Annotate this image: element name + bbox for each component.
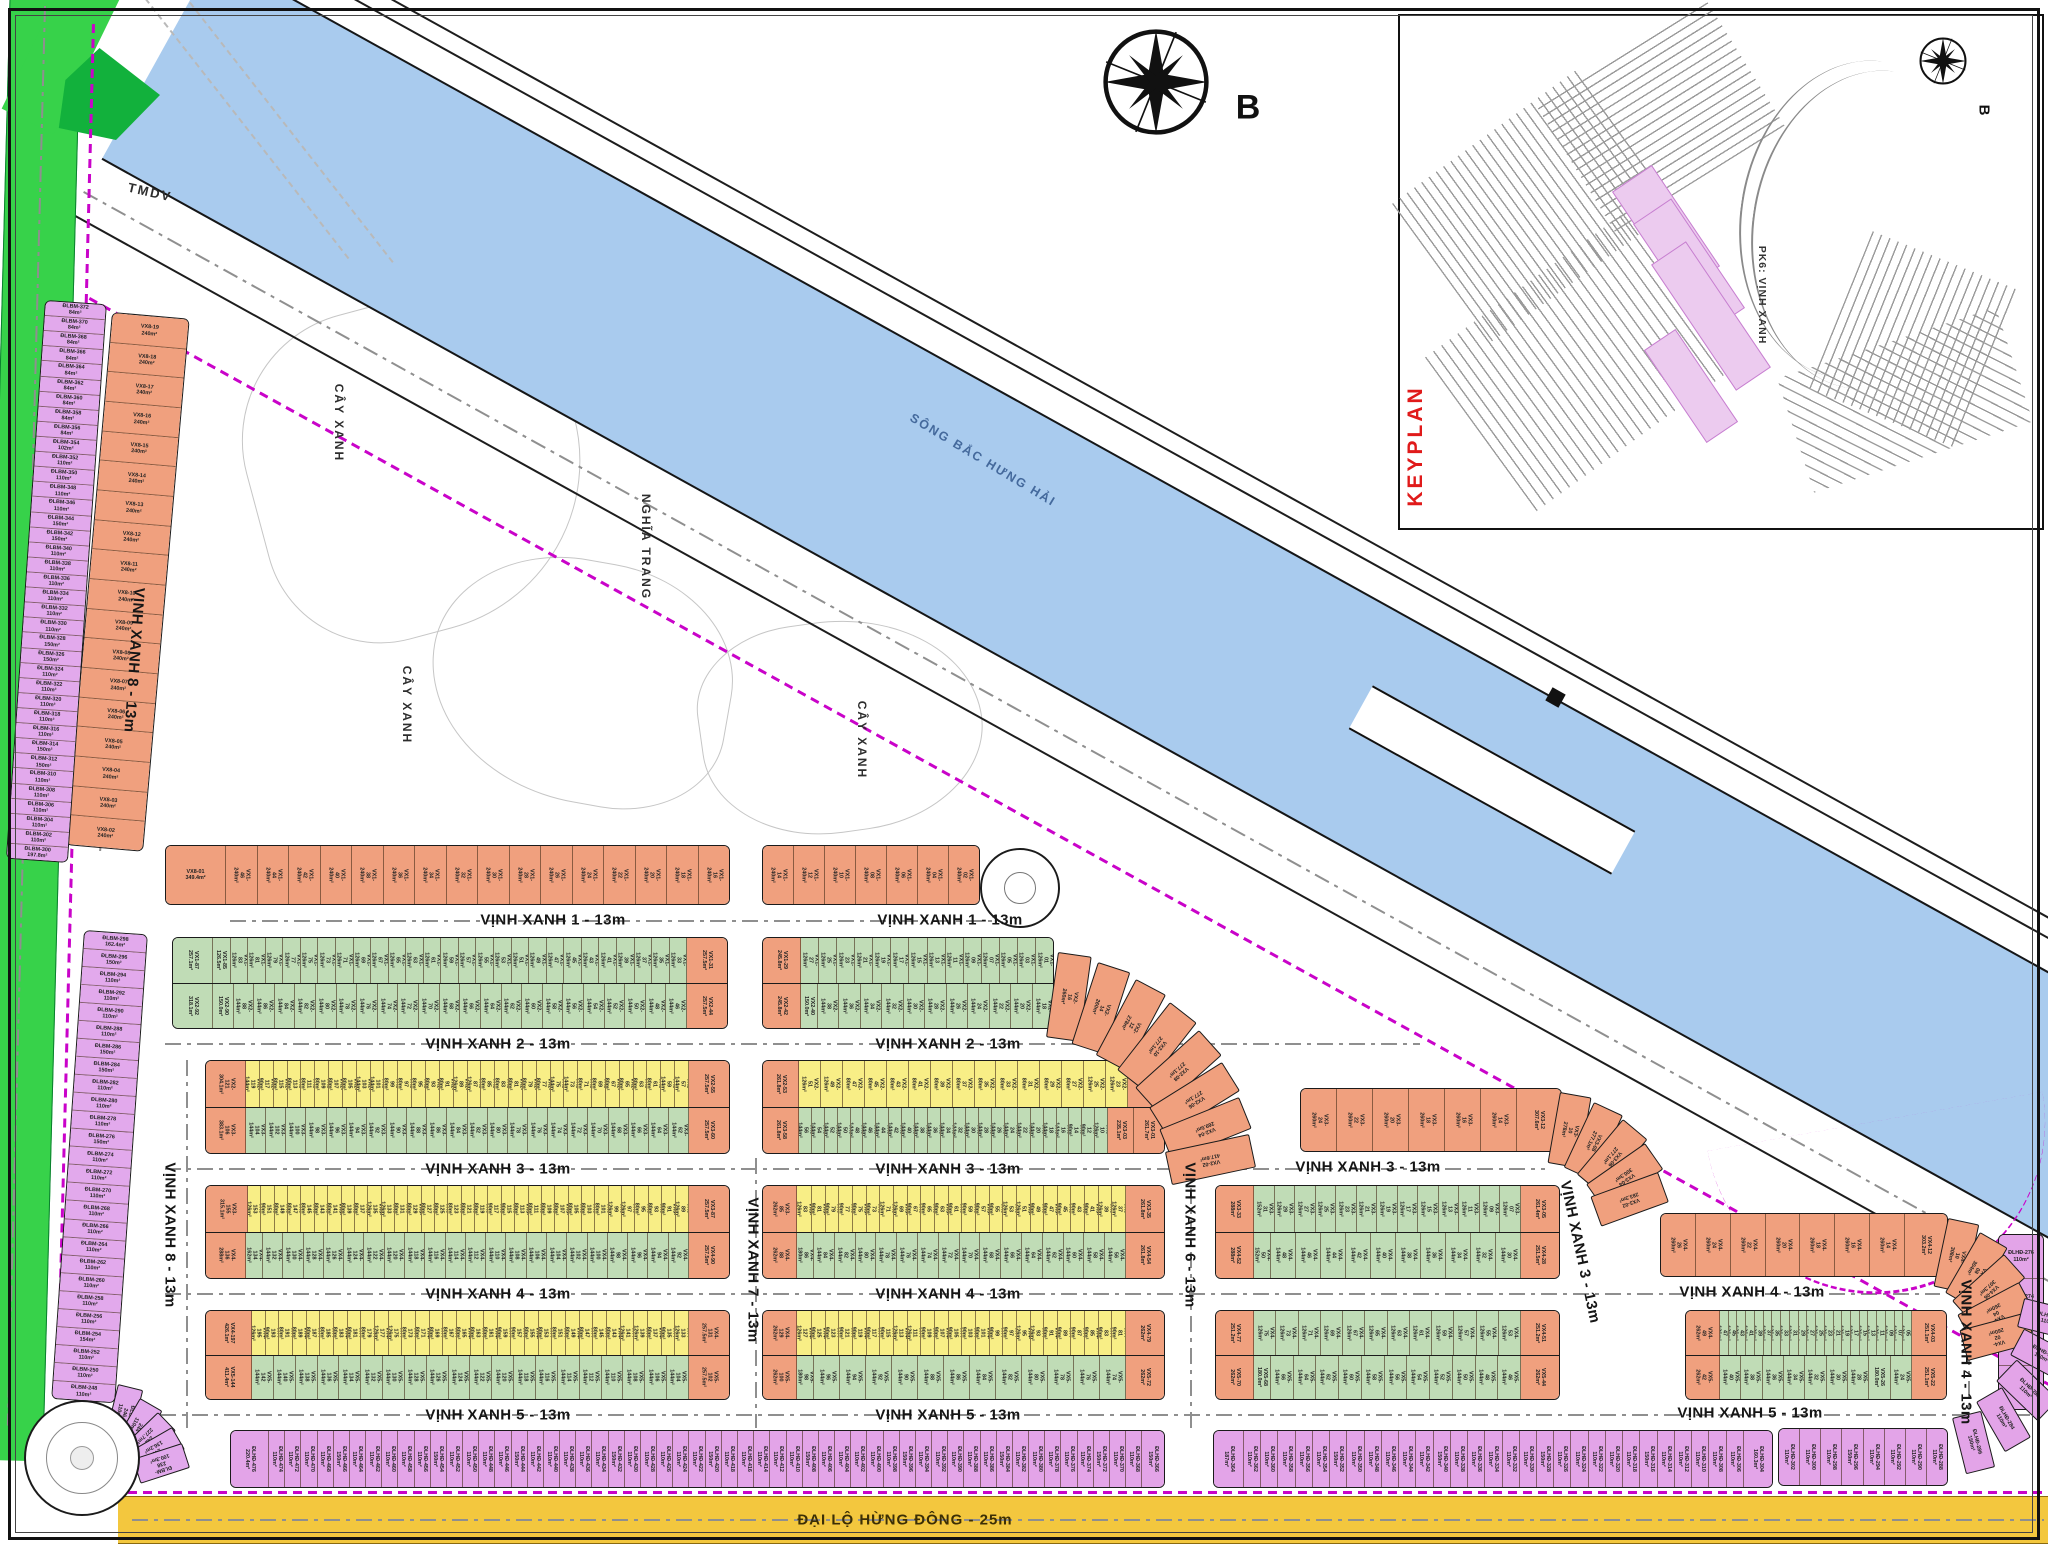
plot-cell-label: VX3-68 144m²	[609, 1122, 628, 1138]
plot-cell-label: VX3-82 144m²	[468, 1122, 487, 1138]
plot-cell-label: VX2-33 80m²	[998, 1077, 1017, 1090]
plot-cell: VX1-46 240m²	[226, 846, 258, 904]
plot-cell: VX1-83 126m²	[231, 938, 249, 983]
plot-cell-label: VX2-06 277.1m²	[1183, 1089, 1207, 1110]
plot-cell-label: VX5-102 257.5m²	[700, 1367, 719, 1387]
plot-cell: VX4-84 144m²	[814, 1233, 835, 1279]
plot-cell: VX3-48 144m²	[851, 1108, 864, 1154]
plot-cell-label: VX1-08 240m²	[862, 867, 881, 883]
plot-cell-label: VX2-14 260m²	[1090, 998, 1113, 1019]
plot-cell: VX3-106 383.1m²	[206, 1108, 246, 1154]
plot-cell-label: VX2-39 80m²	[932, 1077, 951, 1090]
plot-cell: VX2-99 80m²	[384, 1061, 398, 1107]
plot-cell-label: VX3-23 126m²	[1337, 1201, 1356, 1217]
plot-cell: VX1-33 126m²	[670, 938, 688, 983]
plot-cell: VX3-131 80m²	[395, 1186, 408, 1232]
plot-cell: VX5-24 144m²	[1891, 1356, 1912, 1400]
plot-cell: VX5-114 144m²	[558, 1356, 580, 1400]
plot-cell: VX1-27 126m²	[801, 938, 819, 983]
plot-cell-label: VX4-102 144m²	[568, 1247, 587, 1263]
plot-cell: VX1-49 126m²	[529, 938, 547, 983]
plot-cell: VX1-23 126m²	[837, 938, 855, 983]
plot-cell: VX1-12 240m²	[794, 846, 825, 904]
plot-cell-label: ĐLHĐ-412 110m²	[772, 1446, 784, 1472]
plot-cell-label: VX1-43 126m²	[582, 952, 600, 968]
plot-cell-label: VX4-93 126m²	[1031, 1325, 1045, 1341]
plot-cell: VX4-125 90m²	[812, 1311, 826, 1355]
plot-cell-label: ĐLBM-344 150m²	[47, 514, 74, 528]
plot-cell: VX3-113 80m²	[515, 1186, 528, 1232]
plot-cell-label: ĐLHĐ-324 110m²	[1573, 1446, 1585, 1472]
plot-cell-label: ĐLHĐ-374 110m²	[1079, 1446, 1091, 1472]
plot-cell: VX4-71 126m²	[1299, 1311, 1321, 1355]
plot-cell-label: ĐLBM-364 84m²	[58, 363, 85, 377]
plot-cell: VX3-03 235.1m²	[1108, 1108, 1134, 1154]
plot-cell: VX3-43 90m²	[1071, 1186, 1085, 1232]
plot-cell: VX4-193 90m²	[266, 1311, 280, 1355]
plot-cell: VX4-41 126m²	[1746, 1311, 1755, 1355]
plot-cell: ĐLHĐ-378 110m²	[1045, 1431, 1061, 1487]
plot-cell: ĐLHĐ-436 110m²	[576, 1431, 592, 1487]
plot-cell: VX5-26 180.0m²	[1869, 1356, 1890, 1400]
plot-cell: VX3-14 90m²	[1069, 1108, 1082, 1154]
plot-cell-label: ĐLHĐ-468 110m²	[319, 1446, 331, 1472]
plot-cell-label: ĐLHĐ-382 110m²	[1014, 1446, 1026, 1472]
plot-cell-label: VX2-46 144m²	[667, 998, 686, 1014]
plot-cell: VX4-33 126m²	[1781, 1311, 1790, 1355]
plot-row: VX5-144 411.4m²VX5-142 144m²VX5-140 144m…	[206, 1355, 729, 1400]
plot-cell-label: ĐLHĐ-296 150m²	[1846, 1444, 1858, 1470]
plot-cell-label: VX4-74 144m²	[919, 1247, 938, 1263]
plot-cell: ĐLBM-248 110m²	[52, 1381, 115, 1402]
plot-cell-label: VX4-149 80m²	[566, 1326, 580, 1339]
plot-cell: VX1-22 240m²	[604, 846, 636, 904]
plot-cell: ĐLHĐ-310 110m²	[1692, 1431, 1709, 1487]
plot-cell: VX4-38 144m²	[1396, 1233, 1421, 1279]
plot-cell: VX4-97 90m²	[1003, 1311, 1017, 1355]
plot-cell: VX1-13 126m²	[928, 938, 946, 983]
plot-cell-label: VX2-43 80m²	[888, 1077, 907, 1090]
plot-cell: VX2-42 245.8m²	[763, 984, 801, 1029]
plot-cell-label: ĐLHĐ-364 187m²	[1222, 1446, 1234, 1472]
plot-cell-label: VX3-147 80m²	[288, 1202, 301, 1215]
plot-cell-label: VX5-108 144m²	[624, 1369, 643, 1385]
plot-cell-label: ĐLHĐ-358 110m²	[1280, 1446, 1292, 1472]
plot-cell-label: VX5-72 262m²	[1139, 1368, 1151, 1386]
plot-cell-label: VX4-60 144m²	[1064, 1247, 1083, 1263]
plot-cell: VX3-66 144m²	[629, 1108, 649, 1154]
plot-cell: VX3-92 144m²	[367, 1108, 387, 1154]
plot-cell: VX3-19 126m²	[1377, 1186, 1398, 1232]
plot-cell: VX2-71 80m²	[578, 1061, 592, 1107]
plot-cell: VX4-136 288m²	[206, 1233, 246, 1279]
plot-cell-label: ĐLHĐ-298 110m²	[1825, 1444, 1837, 1470]
plot-cell: VX1-37 126m²	[635, 938, 653, 983]
plot-cell-label: ĐLBM-318 110m²	[33, 710, 60, 724]
plot-cell: VX4-72 144m²	[939, 1233, 960, 1279]
plot-cell: VX3-75 90m²	[853, 1186, 867, 1232]
plot-cell-label: VX4-18 260m²	[1808, 1237, 1827, 1254]
plot-cell-label: VX2-02 417.6m²	[1199, 1151, 1221, 1167]
plot-cell: VX2-29 80m²	[1040, 1061, 1062, 1107]
plot-cell-label: VX4-179 80m²	[361, 1326, 375, 1339]
plot-cell: VX2-84 144m²	[275, 984, 296, 1029]
plot-cell: VX8-01 349.4m²	[166, 846, 226, 904]
plot-cell-label: VX8-03 240m²	[99, 797, 118, 811]
plot-cell-label: ĐLBM-292 110m²	[98, 989, 125, 1003]
plot-cell-label: VX4-143 80m²	[607, 1326, 621, 1339]
plot-cell-label: ĐLBM-254 154m²	[74, 1330, 101, 1344]
plot-cell-label: VX5-92 144m²	[869, 1369, 888, 1385]
plot-cell-label: ĐLHĐ-426 110m²	[659, 1446, 671, 1472]
plot-cell: VX4-167 80m²	[443, 1311, 457, 1355]
plot-cell: VX5-32 144m²	[1805, 1356, 1826, 1400]
plot-cell: VX2-55 257.5m²	[689, 1061, 729, 1107]
plot-cell-label: VX1-73 126m²	[318, 952, 336, 968]
plot-cell-label: VX4-68 144m²	[981, 1247, 1000, 1263]
plot-cell-label: VX4-29 126m²	[1799, 1325, 1808, 1341]
plot-cell-label: VX4-32 144m²	[1474, 1247, 1493, 1263]
plot-cell: VX4-29 126m²	[1799, 1311, 1808, 1355]
plot-cell-label: ĐLBM-314 150m²	[31, 740, 58, 754]
plot-cell: VX3-29 126m²	[1275, 1186, 1296, 1232]
plot-cell: VX5-86 144m²	[944, 1356, 970, 1400]
plot-cell-label: VX5-78 144m²	[1051, 1369, 1070, 1385]
plot-cell-label: VX4-46 144m²	[1299, 1247, 1318, 1263]
plot-block-row-vx3-right: VX3-24 260m²VX3-22 260m²VX3-20 260m²VX3-…	[1300, 1088, 1562, 1152]
plot-cell: ĐLHĐ-470 110m²	[301, 1431, 317, 1487]
plot-cell-label: VX3-30 144m²	[966, 1122, 979, 1138]
plot-row: VX3-58 261.8m²VX3-56 144m²VX3-54 144m²VX…	[763, 1107, 1164, 1154]
plot-cell: ĐLHĐ-438 110m²	[560, 1431, 576, 1487]
plot-cell: VX4-123 90m²	[826, 1311, 840, 1355]
plot-cell-label: VX3-113 80m²	[515, 1202, 528, 1215]
plot-row: VX4-88 262m²VX4-86 180m²VX4-84 144m²VX4-…	[763, 1232, 1164, 1279]
plot-cell: VX3-83 126m²	[797, 1186, 812, 1232]
plot-cell-label: VX3-135 126m²	[368, 1201, 381, 1217]
plot-cell-label: ĐLBM-278 110m²	[89, 1114, 116, 1128]
plot-cell: VX3-147 80m²	[288, 1186, 301, 1232]
plot-cell: VX5-144 411.4m²	[206, 1356, 252, 1400]
plot-cell: VX3-99 126m²	[609, 1186, 622, 1232]
plot-cell-label: VX2-90 150.0m²	[217, 996, 229, 1016]
plot-cell-label: VX4-101 90m²	[976, 1326, 990, 1339]
plot-cell-label: VX2-27 80m²	[1063, 1077, 1082, 1090]
plot-cell: VX4-15 126m²	[1860, 1311, 1869, 1355]
plot-cell: VX2-74 144m²	[378, 984, 399, 1029]
plot-cell-label: VX1-19 126m²	[873, 952, 891, 968]
plot-cell-label: VX3-24 260m²	[1309, 1111, 1328, 1129]
plot-cell: ĐLHĐ-348 110m²	[1365, 1431, 1382, 1487]
plot-cell-label: VX3-94 144m²	[347, 1122, 366, 1138]
plot-cell-label: ĐLBM-288 110m²	[95, 1025, 122, 1039]
plot-cell: VX3-74 144m²	[548, 1108, 568, 1154]
plot-cell: VX3-26 144m²	[992, 1108, 1005, 1154]
plot-cell: ĐLHĐ-290 110m²	[1906, 1429, 1927, 1485]
plot-cell: VX1-75 126m²	[301, 938, 319, 983]
plot-cell-label: ĐLHĐ-310 110m²	[1694, 1446, 1706, 1472]
plot-cell: ĐLHĐ-450 110m²	[463, 1431, 479, 1487]
plot-cell: VX3-145 80m²	[301, 1186, 314, 1232]
plot-cell-label: VX4-112 144m²	[466, 1247, 485, 1263]
plot-cell-label: ĐLBM-286 150m²	[94, 1043, 121, 1057]
plot-cell: VX4-137 80m²	[648, 1311, 662, 1355]
plot-cell-label: VX1-31 257.5m²	[701, 950, 713, 970]
plot-cell-label: VX1-57 126m²	[459, 952, 477, 968]
plot-cell-label: ĐLBM-358 84m²	[54, 409, 81, 423]
plot-cell: VX4-105 90m²	[949, 1311, 963, 1355]
plot-cell-label: VX5-50 144m²	[1454, 1369, 1473, 1385]
plot-cell-label: VX3-20 144m²	[1031, 1122, 1044, 1138]
plot-cell-label: VX4-127 126m²	[797, 1325, 812, 1341]
plot-cell: VX1-36 240m²	[384, 846, 416, 904]
plot-cell-label: VX2-51 126m²	[800, 1076, 819, 1092]
plot-cell-label: VX1-71 126m²	[336, 952, 354, 968]
plot-cell-label: ĐLHĐ-452 110m²	[448, 1446, 460, 1472]
plot-cell-label: VX4-67 126m²	[1344, 1325, 1363, 1341]
plot-cell-label: VX2-04 269.5m²	[1194, 1119, 1217, 1138]
plot-cell: VX2-57 144m²	[675, 1061, 689, 1107]
plot-cell-label: VX3-15 126m²	[1419, 1201, 1438, 1217]
plot-cell: VX3-109 80m²	[542, 1186, 555, 1232]
plot-cell-label: VX8-01 349.4m²	[185, 869, 205, 881]
plot-cell: ĐLHĐ-424 110m²	[673, 1431, 689, 1487]
plot-cell: VX4-31 126m²	[1790, 1311, 1799, 1355]
plot-cell: VX4-100 144m²	[588, 1233, 608, 1279]
plot-cell-label: ĐLBM-282 110m²	[92, 1079, 119, 1093]
plot-cell-label: VX1-09 126m²	[964, 952, 982, 968]
plot-cell-label: VX4-100 144m²	[588, 1247, 607, 1263]
plot-cell: VX1-59 126m²	[441, 938, 459, 983]
plot-cell-label: VX4-116 144m²	[426, 1247, 445, 1263]
plot-cell-label: ĐLHĐ-430 110m²	[626, 1446, 638, 1472]
plot-cell: VX5-30 144m²	[1827, 1356, 1848, 1400]
plot-cell: VX4-43 126m²	[1737, 1311, 1746, 1355]
plot-cell-label: VX1-30 240m²	[484, 867, 503, 883]
plot-cell: VX4-83 90m²	[1099, 1311, 1113, 1355]
street-label: VỊNH XANH 3 - 13m	[1295, 1159, 1440, 1176]
plot-cell-label: ĐLHĐ-390 110m²	[950, 1446, 962, 1472]
plot-cell: VX3-42 144m²	[889, 1108, 902, 1154]
plot-cell-label: VX2-28 144m²	[926, 998, 945, 1014]
plot-cell: VX3-139 80m²	[342, 1186, 355, 1232]
plot-cell: ĐLHĐ-442 110m²	[528, 1431, 544, 1487]
plot-cell: VX5-116 144m²	[536, 1356, 558, 1400]
plot-cell: VX4-20 260m²	[1766, 1214, 1801, 1276]
plot-cell-label: VX3-55 90m²	[990, 1202, 1004, 1215]
plot-row: VX4-49 262m²VX4-47 126m²VX4-45 126m²VX4-…	[1686, 1311, 1946, 1355]
plot-cell: VX4-129 262m²	[763, 1311, 797, 1355]
plot-cell: VX2-86 144m²	[254, 984, 275, 1029]
plot-cell-label: VX1-14 240m²	[769, 867, 788, 883]
plot-cell: VX2-37 80m²	[953, 1061, 975, 1107]
plot-cell: VX3-31 152m²	[1254, 1186, 1275, 1232]
plot-cell-label: VX2-73 144m²	[564, 1076, 578, 1092]
plot-cell-label: VX5-122 144m²	[472, 1369, 491, 1385]
plot-cell-label: VX4-63 126m²	[1389, 1325, 1408, 1341]
plot-cell: VX4-159 90m²	[498, 1311, 512, 1355]
plot-cell-label: VX1-69 126m²	[354, 952, 372, 968]
plot-cell: VX3-55 90m²	[990, 1186, 1004, 1232]
plot-row: VX3-33 288m²VX3-31 152m²VX3-29 126m²VX3-…	[1216, 1186, 1559, 1232]
plot-cell: VX4-181 80m²	[348, 1311, 362, 1355]
plot-cell: VX4-46 144m²	[1296, 1233, 1321, 1279]
plot-cell: VX2-64 144m²	[481, 984, 502, 1029]
plot-cell-label: VX8-17 240m²	[135, 383, 154, 397]
plot-cell-label: VX4-123 90m²	[826, 1326, 840, 1339]
plot-cell: VX4-133 126m²	[675, 1311, 689, 1355]
plot-cell: VX3-101 80m²	[595, 1186, 608, 1232]
plot-cell: VX4-107 90m²	[935, 1311, 949, 1355]
plot-cell: VX2-45 80m²	[865, 1061, 887, 1107]
plot-cell: VX3-104 144m²	[246, 1108, 266, 1154]
plot-cell-label: VX5-114 144m²	[559, 1369, 578, 1385]
plot-cell-label: ĐLHĐ-316 150m²	[1642, 1446, 1654, 1472]
plot-cell: VX1-26 240m²	[541, 846, 573, 904]
plot-cell: ĐLHĐ-322 110m²	[1589, 1431, 1606, 1487]
plot-cell: VX3-84 144m²	[447, 1108, 467, 1154]
plot-cell-label: VX5-98 180m²	[797, 1369, 814, 1385]
plot-cell: ĐLHĐ-388 110m²	[964, 1431, 980, 1487]
plot-cell-label: ĐLHĐ-380 110m²	[1030, 1446, 1042, 1472]
plot-cell-label: VX4-48 144m²	[1274, 1247, 1293, 1263]
plot-cell: VX3-49 90m²	[1031, 1186, 1045, 1232]
plot-cell: ĐLHĐ-462 110m²	[366, 1431, 382, 1487]
plot-cell-label: ĐLHĐ-378 110m²	[1047, 1446, 1059, 1472]
plot-cell-label: VX5-60 144m²	[1341, 1369, 1360, 1385]
plot-cell-label: ĐLHĐ-416 110m²	[739, 1446, 751, 1472]
plot-cell-label: VX5-44 262m²	[1534, 1368, 1546, 1386]
plot-cell: VX4-50 152m²	[1254, 1233, 1271, 1279]
plot-cell-label: VX3-28 144m²	[979, 1122, 992, 1138]
plot-cell-label: VX3-151 90m²	[261, 1202, 274, 1215]
plot-cell-label: VX3-16 144m²	[1057, 1122, 1070, 1138]
plot-cell-label: VX4-88 262m²	[770, 1247, 789, 1264]
street-label: VỊNH XANH 1 - 13m	[877, 912, 1022, 929]
plot-cell-label: ĐLBM-266 110m²	[82, 1222, 109, 1236]
plot-cell-label: ĐLBM-264 110m²	[80, 1240, 107, 1254]
plot-cell: ĐLHĐ-398 110m²	[884, 1431, 900, 1487]
plot-cell: VX3-77 90m²	[839, 1186, 853, 1232]
plot-cell: VX1-28 240m²	[510, 846, 542, 904]
plot-row: VX4-52 288m²VX4-50 152m²VX4-48 144m²VX4-…	[1216, 1232, 1559, 1279]
keyplan-north-label: B	[1976, 105, 1993, 116]
plot-cell-label: VX1-23 126m²	[837, 952, 855, 968]
plot-cell-label: ĐLHĐ-332 110m²	[1504, 1446, 1516, 1472]
plot-cell: VX2-107 80m²	[329, 1061, 343, 1107]
plot-cell-label: VX5-144 411.4m²	[222, 1367, 234, 1388]
plot-cell-label: VX1-21 126m²	[855, 952, 873, 968]
plot-cell: VX2-22 144m²	[990, 984, 1011, 1029]
plot-cell-label: VX4-65 126m²	[1367, 1325, 1386, 1341]
plot-cell: VX1-35 126m²	[652, 938, 670, 983]
plot-cell-label: VX5-76 144m²	[1077, 1369, 1096, 1385]
plot-cell: VX5-122 144m²	[470, 1356, 492, 1400]
plot-cell-label: ĐLHĐ-370 110m²	[1111, 1446, 1123, 1472]
plot-cell: VX1-51 126m²	[512, 938, 530, 983]
plot-cell-label: ĐLHĐ-292 110m²	[1888, 1444, 1900, 1470]
plot-cell-label: VX1-33 126m²	[670, 952, 688, 968]
plot-cell-label: VX3-143 80m²	[315, 1202, 328, 1215]
plot-cell-label: VX4-81 90m²	[1112, 1326, 1126, 1339]
plot-cell-label: VX4-03 251.1m²	[1923, 1323, 1935, 1343]
plot-cell-label: VX3-103 80m²	[582, 1202, 595, 1215]
plot-cell-label: VX3-47 90m²	[1044, 1202, 1058, 1215]
plot-cell-label: VX4-89 90m²	[1058, 1326, 1072, 1339]
plot-cell: VX5-22 251.1m²	[1912, 1356, 1946, 1400]
plot-cell: VX4-143 80m²	[607, 1311, 621, 1355]
plot-cell-label: VX4-151 80m²	[552, 1326, 566, 1339]
plot-cell-label: VX8-19 240m²	[140, 324, 159, 338]
plot-cell: ĐLHĐ-336 110m²	[1468, 1431, 1485, 1487]
plot-cell-label: VX4-15 126m²	[1860, 1325, 1869, 1341]
plot-cell-label: VX2-53 261.8m²	[774, 1074, 786, 1094]
plot-cell-label: VX3-25 126m²	[1316, 1201, 1335, 1217]
plot-cell: VX1-10 240m²	[825, 846, 856, 904]
plot-cell-label: VX5-94 144m²	[843, 1369, 862, 1385]
plot-cell-label: ĐLBM-268 110m²	[83, 1204, 110, 1218]
plot-cell: VX4-169 80m²	[430, 1311, 444, 1355]
plot-cell: VX4-85 90m²	[1085, 1311, 1099, 1355]
plot-cell: ĐLHĐ-452 110m²	[447, 1431, 463, 1487]
plot-cell: VX2-66 144m²	[460, 984, 481, 1029]
plot-cell-label: VX3-145 80m²	[301, 1202, 314, 1215]
plot-cell: ĐLHĐ-400 110m²	[867, 1431, 883, 1487]
plot-cell-label: ĐLHĐ-340 150m²	[1435, 1446, 1447, 1472]
plot-cell: VX5-42 262m²	[1686, 1356, 1720, 1400]
plot-cell-label: VX1-85 126.5m²	[215, 950, 227, 970]
plot-cell: VX3-143 80m²	[315, 1186, 328, 1232]
plot-cell-label: VX4-165 80m²	[457, 1326, 471, 1339]
plot-cell-label: VX1-27 126m²	[801, 952, 819, 968]
plot-cell-label: VX4-75 126m²	[1255, 1325, 1274, 1341]
plot-cell-label: VX4-181 80m²	[348, 1326, 362, 1339]
plot-cell-label: ĐLHĐ-406 110m²	[820, 1446, 832, 1472]
plot-cell: VX5-108 144m²	[623, 1356, 645, 1400]
plot-block-block-e1: VX3-155 315.1m²VX3-153 126m²VX3-151 90m²…	[205, 1185, 730, 1279]
plot-cell: VX3-39 126m²	[1099, 1186, 1113, 1232]
plot-cell-label: ĐLBM-250 110m²	[71, 1366, 98, 1380]
plot-cell-label: ĐLHĐ-284 110m²	[1992, 1405, 2016, 1434]
plot-cell: VX3-149 80m²	[275, 1186, 288, 1232]
plot-cell-label: VX2-58 144m²	[543, 998, 562, 1014]
plot-row: VX2-92 318.1m²VX2-90 150.0m²VX2-88 144m²…	[173, 983, 727, 1029]
plot-cell: ĐLHĐ-346 110m²	[1382, 1431, 1399, 1487]
plot-cell-label: VX3-07 126m²	[1501, 1201, 1520, 1217]
plot-cell-label: ĐLHĐ-404 110m²	[836, 1446, 848, 1472]
plot-cell: VX1-41 126m²	[599, 938, 617, 983]
plot-cell-label: VX4-78 144m²	[877, 1247, 896, 1263]
plot-cell: VX4-93 126m²	[1031, 1311, 1045, 1355]
plot-cell: VX1-73 126m²	[318, 938, 336, 983]
plot-cell: VX5-72 262m²	[1126, 1356, 1164, 1400]
plot-cell-label: VX1-61 126m²	[424, 952, 442, 968]
plot-cell: VX2-65 80m²	[620, 1061, 634, 1107]
plot-cell-label: ĐLHĐ-388 110m²	[966, 1446, 978, 1472]
plot-cell: ĐLHĐ-362 110m²	[1244, 1431, 1261, 1487]
plot-cell-label: VX1-81 126m²	[248, 952, 266, 968]
plot-cell: VX1-67 126m²	[371, 938, 389, 983]
plot-cell-label: VX3-13 126m²	[1439, 1201, 1458, 1217]
plot-cell: VX3-21 126m²	[1357, 1186, 1378, 1232]
plot-cell-label: ĐLHĐ-304 160.3m²	[1752, 1446, 1764, 1472]
plot-cell-label: VX4-53 126m²	[1500, 1325, 1519, 1341]
plot-cell: VX3-98 144m²	[306, 1108, 326, 1154]
plot-row: VX4-136 288m²VX4-134 162m²VX4-132 144m²V…	[206, 1232, 729, 1279]
plot-cell-label: ĐLHĐ-422 110m²	[691, 1446, 703, 1472]
plot-cell: VX1-14 240m²	[763, 846, 794, 904]
plot-cell-label: VX4-82 144m²	[835, 1247, 854, 1263]
